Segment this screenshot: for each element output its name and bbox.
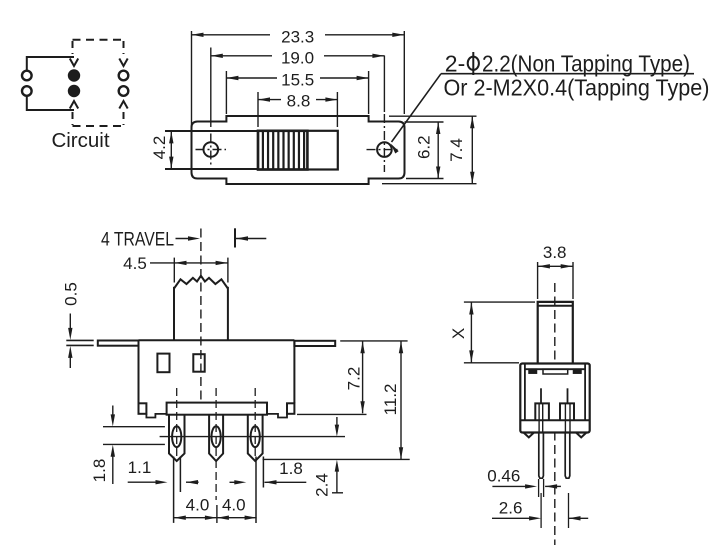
svg-text:7.4: 7.4: [447, 138, 466, 162]
svg-text:15.5: 15.5: [281, 70, 314, 89]
svg-text:Or 2-M2X0.4(Tapping Type): Or 2-M2X0.4(Tapping Type): [444, 75, 710, 101]
svg-text:1.8: 1.8: [279, 459, 303, 478]
svg-text:0.5: 0.5: [62, 282, 81, 306]
svg-text:6.2: 6.2: [415, 135, 434, 159]
svg-text:2.4: 2.4: [313, 473, 332, 497]
svg-text:2.2(Non Tapping Type): 2.2(Non Tapping Type): [482, 51, 690, 77]
svg-text:4.0: 4.0: [222, 495, 246, 514]
svg-text:2-: 2-: [445, 51, 465, 77]
svg-text:4.5: 4.5: [123, 254, 147, 273]
svg-text:Circuit: Circuit: [51, 129, 109, 152]
svg-text:4 TRAVEL: 4 TRAVEL: [101, 229, 174, 250]
svg-text:4.2: 4.2: [150, 136, 169, 160]
svg-text:1.8: 1.8: [90, 459, 109, 483]
svg-text:19.0: 19.0: [281, 48, 314, 67]
svg-text:4.0: 4.0: [186, 495, 210, 514]
svg-text:23.3: 23.3: [281, 27, 314, 46]
svg-text:11.2: 11.2: [381, 383, 400, 415]
svg-text:7.2: 7.2: [345, 367, 364, 391]
svg-text:3.8: 3.8: [543, 243, 567, 262]
svg-text:0.46: 0.46: [487, 466, 520, 485]
svg-text:1.1: 1.1: [128, 458, 152, 477]
svg-text:X: X: [449, 328, 468, 339]
svg-text:8.8: 8.8: [287, 92, 311, 111]
svg-text:2.6: 2.6: [499, 499, 523, 518]
